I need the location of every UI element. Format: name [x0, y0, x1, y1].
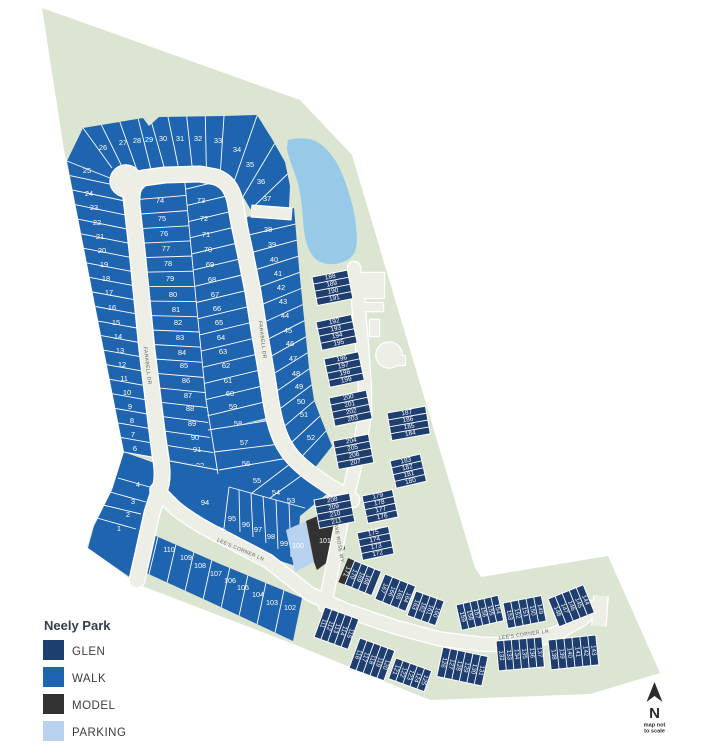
svg-text:107: 107	[210, 569, 222, 578]
svg-text:64: 64	[217, 333, 225, 342]
svg-text:69: 69	[206, 260, 214, 269]
svg-text:62: 62	[222, 361, 230, 370]
svg-text:3: 3	[131, 497, 135, 506]
svg-text:100: 100	[292, 543, 304, 550]
svg-text:66: 66	[213, 304, 221, 313]
svg-text:40: 40	[270, 255, 278, 264]
svg-text:27: 27	[119, 138, 127, 147]
svg-text:60: 60	[226, 389, 234, 398]
svg-text:71: 71	[202, 230, 210, 239]
svg-text:82: 82	[174, 318, 182, 327]
svg-text:136: 136	[528, 647, 536, 658]
svg-text:23: 23	[90, 203, 98, 212]
svg-text:105: 105	[237, 583, 249, 592]
svg-text:132: 132	[497, 650, 505, 661]
svg-text:55: 55	[253, 476, 261, 485]
svg-text:138: 138	[550, 649, 558, 661]
svg-text:139: 139	[557, 648, 565, 660]
svg-text:39: 39	[268, 240, 276, 249]
svg-text:49: 49	[295, 382, 303, 391]
svg-text:42: 42	[277, 283, 285, 292]
svg-text:75: 75	[158, 214, 166, 223]
svg-text:81: 81	[172, 305, 180, 314]
svg-text:2: 2	[126, 510, 130, 519]
svg-text:65: 65	[215, 318, 223, 327]
svg-text:74: 74	[156, 196, 164, 205]
svg-text:19: 19	[100, 260, 108, 269]
svg-text:59: 59	[229, 402, 237, 411]
svg-text:48: 48	[292, 369, 300, 378]
svg-text:99: 99	[280, 539, 288, 548]
svg-text:80: 80	[169, 290, 177, 299]
svg-text:53: 53	[287, 496, 295, 505]
svg-text:104: 104	[252, 590, 264, 599]
svg-text:30: 30	[159, 134, 167, 143]
svg-text:16: 16	[108, 303, 116, 312]
svg-text:to scale: to scale	[644, 729, 665, 735]
svg-text:47: 47	[289, 354, 297, 363]
svg-text:46: 46	[286, 339, 294, 348]
svg-text:76: 76	[160, 229, 168, 238]
svg-text:45: 45	[284, 326, 292, 335]
svg-text:GLEN: GLEN	[72, 646, 105, 658]
svg-text:52: 52	[307, 433, 315, 442]
svg-text:4: 4	[136, 480, 140, 489]
svg-text:102: 102	[284, 603, 296, 612]
svg-text:143: 143	[589, 645, 597, 657]
svg-text:15: 15	[112, 318, 120, 327]
svg-text:21: 21	[96, 232, 104, 241]
svg-text:34: 34	[233, 145, 241, 154]
svg-text:22: 22	[93, 218, 101, 227]
svg-text:109: 109	[180, 553, 192, 562]
svg-text:67: 67	[211, 290, 219, 299]
svg-text:87: 87	[184, 391, 192, 400]
svg-text:95: 95	[228, 514, 236, 523]
svg-text:14: 14	[114, 332, 122, 341]
svg-text:73: 73	[197, 196, 205, 205]
svg-text:31: 31	[176, 134, 184, 143]
svg-text:N: N	[649, 705, 660, 722]
svg-text:20: 20	[98, 246, 106, 255]
svg-text:1: 1	[117, 524, 121, 533]
svg-text:134: 134	[512, 649, 520, 660]
svg-text:WALK: WALK	[72, 673, 106, 685]
svg-text:63: 63	[219, 347, 227, 356]
svg-text:8: 8	[130, 416, 134, 425]
svg-text:11: 11	[120, 374, 128, 383]
svg-text:26: 26	[99, 143, 107, 152]
svg-text:7: 7	[131, 430, 135, 439]
svg-text:135: 135	[520, 648, 528, 659]
svg-text:97: 97	[254, 525, 262, 534]
svg-text:110: 110	[163, 545, 174, 554]
svg-text:6: 6	[133, 444, 137, 453]
svg-text:18: 18	[102, 274, 110, 283]
svg-text:88: 88	[186, 404, 194, 413]
svg-text:17: 17	[105, 288, 113, 297]
svg-text:133: 133	[505, 649, 513, 660]
svg-text:38: 38	[264, 225, 272, 234]
svg-text:10: 10	[123, 388, 131, 397]
svg-text:83: 83	[176, 333, 184, 342]
svg-text:37: 37	[263, 194, 271, 203]
svg-text:96: 96	[242, 520, 250, 529]
svg-text:MODEL: MODEL	[72, 700, 116, 712]
svg-text:101: 101	[319, 538, 331, 545]
svg-text:140: 140	[565, 647, 573, 659]
svg-text:50: 50	[297, 397, 305, 406]
svg-text:89: 89	[188, 419, 196, 428]
svg-text:43: 43	[279, 297, 287, 306]
svg-text:68: 68	[208, 275, 216, 284]
svg-text:9: 9	[128, 402, 132, 411]
svg-text:86: 86	[182, 376, 190, 385]
svg-text:90: 90	[191, 433, 199, 442]
svg-text:41: 41	[274, 269, 282, 278]
svg-text:51: 51	[300, 410, 308, 419]
svg-text:13: 13	[116, 346, 124, 355]
svg-text:91: 91	[193, 445, 201, 454]
svg-text:32: 32	[194, 134, 202, 143]
svg-text:98: 98	[267, 532, 275, 541]
svg-text:94: 94	[201, 498, 209, 507]
svg-text:36: 36	[257, 177, 265, 186]
svg-text:44: 44	[281, 311, 289, 320]
svg-text:28: 28	[133, 136, 141, 145]
svg-text:108: 108	[194, 561, 206, 570]
svg-text:35: 35	[246, 160, 254, 169]
svg-text:78: 78	[164, 259, 172, 268]
svg-text:24: 24	[85, 189, 93, 198]
svg-text:103: 103	[266, 598, 278, 607]
svg-text:29: 29	[145, 135, 153, 144]
svg-text:Neely Park: Neely Park	[44, 618, 111, 633]
svg-text:57: 57	[240, 438, 248, 447]
svg-text:84: 84	[178, 348, 186, 357]
svg-text:137: 137	[535, 647, 543, 658]
svg-text:141: 141	[573, 646, 581, 658]
svg-text:56: 56	[242, 459, 250, 468]
svg-text:72: 72	[200, 214, 208, 223]
svg-text:12: 12	[118, 360, 126, 369]
svg-text:PARKING: PARKING	[72, 727, 126, 739]
svg-text:79: 79	[166, 274, 174, 283]
svg-text:54: 54	[272, 488, 280, 497]
svg-text:77: 77	[162, 244, 170, 253]
svg-text:142: 142	[581, 646, 589, 658]
svg-text:106: 106	[224, 576, 236, 585]
svg-text:85: 85	[180, 361, 188, 370]
svg-text:70: 70	[204, 245, 212, 254]
svg-text:33: 33	[214, 136, 222, 145]
svg-text:61: 61	[224, 376, 232, 385]
